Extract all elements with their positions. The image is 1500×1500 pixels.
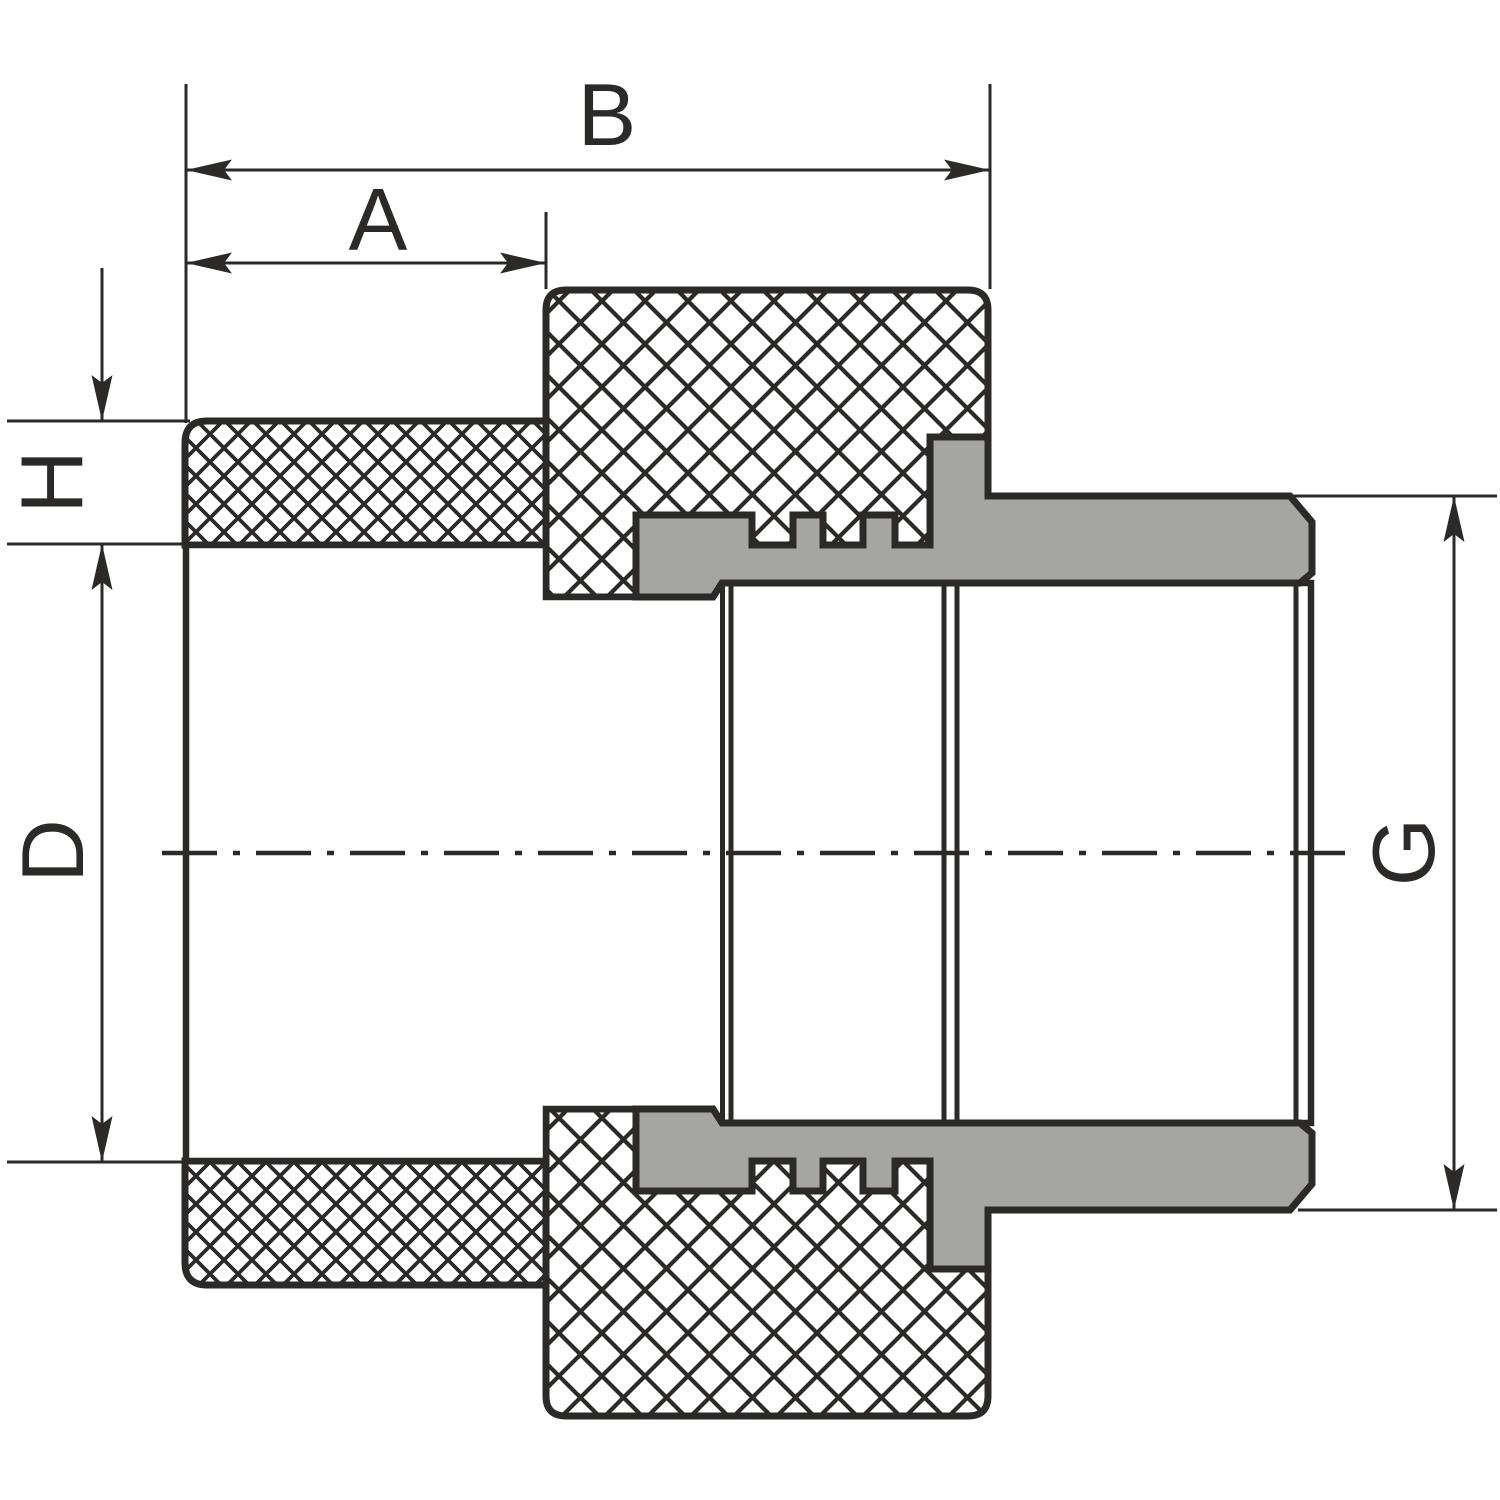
plastic-left-lower-wall (185, 1161, 546, 1285)
dimension-label-g: G (1354, 818, 1453, 886)
pipe-fitting-cross-section-drawing: B A H D G (0, 0, 1500, 1500)
technical-drawing-page: B A H D G (0, 0, 1500, 1500)
dimension-label-b: B (578, 65, 637, 164)
plastic-left-upper-wall (185, 421, 546, 545)
dimension-label-d: D (3, 819, 102, 883)
dimension-label-a: A (349, 170, 408, 269)
dimension-label-h: H (2, 450, 101, 514)
